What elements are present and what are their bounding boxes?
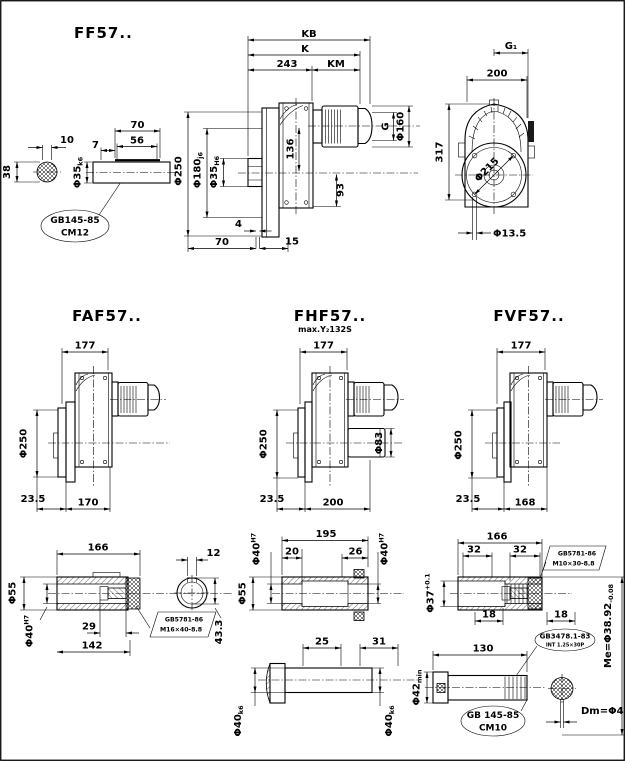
dim-spigot-dia: Φ180j6 (193, 151, 205, 188)
dim-g1: G₁ (505, 41, 518, 52)
dim-flange-dia: Φ250 (174, 156, 185, 185)
dim-cross-height: 38 (2, 165, 13, 179)
dim-bore-dia: Φ35H6 (209, 155, 221, 188)
callout-bolt-size-a: M16×40-8.8 (160, 627, 202, 634)
dim-sp-shaft-dia: Φ42min (412, 669, 424, 705)
view-fvf57: FVF57.. 177 Φ250 23.5 168 (454, 307, 604, 512)
dim-tb-25: 25 (315, 637, 329, 648)
dim-fvf-23-5: 23.5 (456, 494, 481, 505)
callout-spline-std: GB3478.1-83 (540, 633, 591, 641)
dim-ha-29: 29 (82, 622, 96, 633)
dim-tb-shaft-right: Φ40k6 (384, 705, 396, 737)
ff57-flange (262, 108, 279, 237)
view-faf57: FAF57.. 177 Φ250 23.5 170 (19, 307, 171, 512)
dim-fhf-23-5: 23.5 (260, 494, 285, 505)
dim-ha-166: 166 (88, 543, 109, 554)
ff57-motor (322, 106, 358, 147)
dim-ha-key-w: 12 (207, 548, 221, 559)
view-title-faf57: FAF57.. (72, 307, 142, 325)
view-title-fhf57: FHF57.. (294, 307, 366, 325)
dim-g: G (381, 122, 392, 130)
ff57-side-view: KB K 243 KM G Φ160 Φ250 Φ180j6 Φ35H6 136… (174, 29, 421, 252)
dim-fhf-flange-dia: Φ250 (259, 429, 270, 458)
dim-sp-dm: Dm=Φ4 (581, 706, 624, 717)
dim-sp-166: 166 (487, 532, 508, 543)
view-title-ff57: FF57.. (74, 24, 133, 42)
terminal-box (528, 121, 534, 142)
dim-fhf-177: 177 (313, 341, 334, 352)
ff57-front-view: Φ215 Φ13.5 G₁ 200 317 (435, 41, 535, 240)
dim-ha-43-3: 43.3 (214, 620, 225, 645)
callout-center-hole-std: GB145-85 (50, 216, 99, 226)
dim-faf-23-5: 23.5 (21, 494, 46, 505)
dim-tb-bore-left: Φ40H7 (250, 533, 263, 565)
detail-spline-shaft: 166 32 32 GB5781-86 M10×30-8.8 Φ37+0.1 1… (412, 532, 625, 737)
dim-key-length: 56 (130, 136, 144, 147)
callout-center-hole-type: CM12 (61, 229, 89, 239)
dim-93: 93 (336, 183, 347, 197)
dim-k: K (301, 44, 310, 55)
dim-km: KM (327, 59, 345, 70)
view-title-fvf57: FVF57.. (493, 307, 564, 325)
dim-fhf-83: Φ83 (374, 432, 385, 454)
label-shaft-dia: Φ35k6 (73, 156, 85, 188)
dim-hole-dia: Φ13.5 (493, 229, 526, 240)
dim-kb: KB (301, 29, 316, 40)
dim-sp-me: Me=Φ38.92-0.08 (603, 584, 615, 668)
dim-tb-bore-right: Φ40H7 (378, 533, 391, 565)
dim-243: 243 (277, 59, 298, 70)
dim-bottom-15: 15 (285, 237, 299, 248)
dim-tb-31: 31 (372, 637, 386, 648)
dim-faf-177: 177 (75, 341, 96, 352)
dim-ha-bore: Φ40H7 (23, 615, 36, 647)
dim-shaft-length: 70 (131, 120, 145, 131)
detail-hollow-shaft: 166 Φ55 Φ40H7 29 142 GB5781-86 M16×40-8.… (8, 543, 233, 657)
dim-bottom-70: 70 (215, 237, 229, 248)
dim-bolt-circle: Φ215 (473, 156, 502, 185)
dim-sp-32b: 32 (513, 545, 527, 556)
view-ff57: FF57.. 10 38 70 56 7 Φ35k6 GB145-85 CM12 (2, 24, 535, 252)
dim-motor-dia: Φ160 (396, 112, 407, 141)
dim-fvf-flange-dia: Φ250 (454, 430, 465, 459)
dim-tb-26: 26 (349, 547, 363, 558)
view-subtitle-fhf57: max.Y₂132S (298, 325, 352, 334)
dim-sp-18a: 18 (482, 610, 496, 621)
drawing-canvas: FF57.. 10 38 70 56 7 Φ35k6 GB145-85 CM12 (0, 0, 625, 761)
dim-136: 136 (286, 139, 297, 160)
callout-bolt-std-a: GB5781-86 (165, 617, 203, 624)
dim-tb-od: Φ55 (238, 582, 249, 604)
dim-sp-130: 130 (473, 644, 494, 655)
dim-fhf-200: 200 (323, 498, 344, 509)
dim-cross-width: 10 (60, 135, 74, 146)
dim-tb-shaft-left: Φ40k6 (233, 705, 245, 737)
dim-sp-18b: 18 (554, 610, 568, 621)
dim-ha-od: Φ55 (8, 582, 19, 604)
technical-drawing-page: FF57.. 10 38 70 56 7 Φ35k6 GB145-85 CM12 (0, 0, 625, 761)
dim-front-width: 200 (487, 69, 508, 80)
view-fhf57: FHF57.. max.Y₂132S 177 Φ250 Φ83 23.5 200 (259, 307, 405, 512)
callout-spline-detail: INT 1.25×30P (546, 643, 585, 649)
dim-key-offset: 7 (92, 140, 99, 151)
dim-ha-142: 142 (82, 641, 103, 652)
callout-center-hole-type-c: CM10 (479, 724, 507, 734)
dim-faf-flange-dia: Φ250 (19, 429, 30, 458)
dim-tb-20: 20 (285, 547, 299, 558)
dim-fvf-177: 177 (511, 341, 532, 352)
dim-fvf-168: 168 (515, 498, 536, 509)
dim-faf-170: 170 (78, 498, 99, 509)
dim-sp-32a: 32 (467, 545, 481, 556)
dim-4: 4 (235, 219, 242, 230)
dim-front-height: 317 (435, 142, 446, 163)
detail-through-shaft: 195 20 26 Φ40H7 Φ40H7 Φ55 25 31 Φ40k6 Φ4… (233, 529, 420, 737)
callout-bolt-std-c: GB5781-86 (558, 551, 596, 558)
ff57-shaft-cross-section: 10 38 (2, 135, 74, 182)
callout-bolt-size-c: M10×30-8.8 (552, 561, 594, 568)
callout-center-hole-std-c: GB 145-85 (467, 711, 519, 721)
dim-tb-195: 195 (316, 529, 337, 540)
dim-sp-bore: Φ37+0.1 (424, 573, 437, 613)
